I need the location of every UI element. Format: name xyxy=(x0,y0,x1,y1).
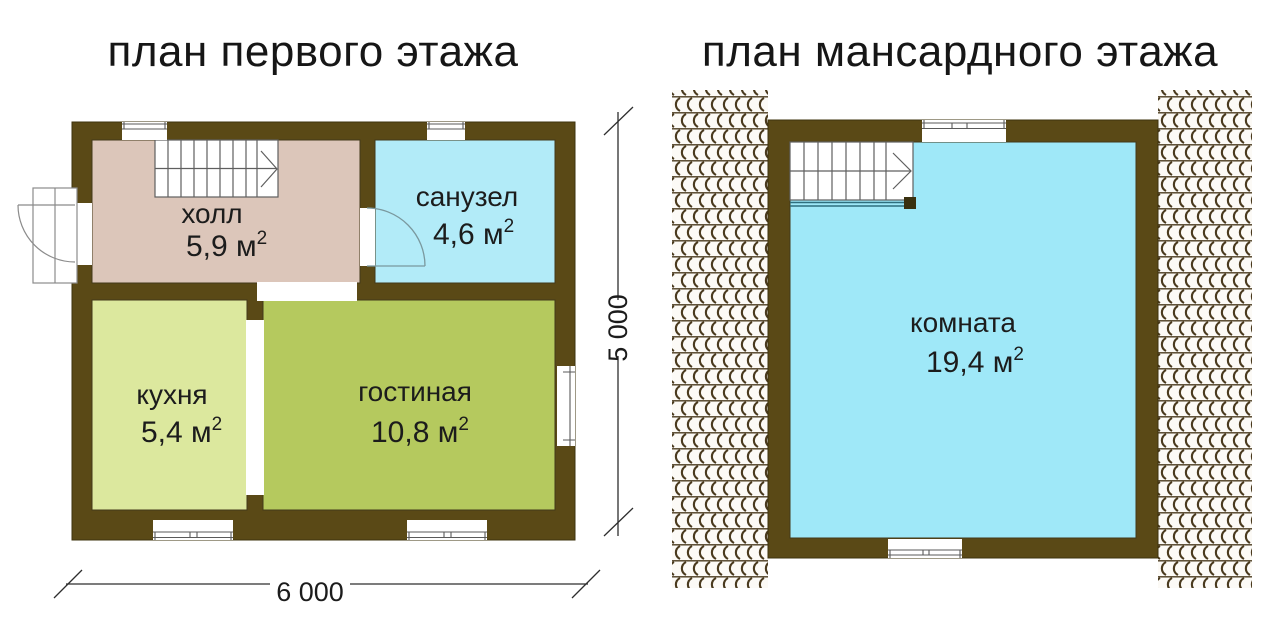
room-kitchen-label: кухня xyxy=(136,379,207,410)
room-hall-area: 5,9 м2 xyxy=(186,228,267,263)
stairs-floor2 xyxy=(790,142,913,200)
roof-hatch-right xyxy=(1158,90,1252,588)
stairs-floor1 xyxy=(155,140,278,197)
window-hall-top xyxy=(122,122,167,140)
room-living-area: 10,8 м2 xyxy=(371,414,469,449)
room-kitchen-area: 5,4 м2 xyxy=(141,414,222,449)
roof-hatch-left xyxy=(672,90,768,588)
floor2-title: план мансардного этажа xyxy=(702,27,1218,76)
window-attic-bottom xyxy=(888,539,962,558)
floor1-plan: холл 5,9 м2 санузел 4,6 м2 кухня 5,4 м2 … xyxy=(18,107,633,607)
room-attic-label: комната xyxy=(910,307,1016,338)
stairs-newel-post xyxy=(904,197,916,209)
dimension-height-label: 5 000 xyxy=(603,294,633,362)
window-kitchen-bottom xyxy=(153,520,233,540)
floor2-plan: комната 19,4 м2 xyxy=(672,90,1252,588)
floor1-title: план первого этажа xyxy=(108,27,519,76)
opening-kitchen-living xyxy=(246,320,264,495)
window-living-right xyxy=(557,366,575,446)
window-attic-top xyxy=(922,120,1006,142)
opening-bathroom-door xyxy=(360,208,375,266)
room-bathroom-label: санузел xyxy=(416,181,519,212)
room-attic-area: 19,4 м2 xyxy=(926,344,1024,379)
entrance-door xyxy=(18,188,77,283)
floorplan-page: план первого этажа план мансардного этаж… xyxy=(0,0,1280,640)
window-living-bottom xyxy=(407,520,487,540)
floorplans-canvas: план первого этажа план мансардного этаж… xyxy=(0,0,1280,640)
opening-hall-living xyxy=(257,282,357,301)
room-attic xyxy=(790,142,1136,538)
room-hall-label: холл xyxy=(181,198,242,229)
room-living-label: гостиная xyxy=(358,376,472,407)
window-bathroom-top xyxy=(427,122,465,140)
dimension-width-label: 6 000 xyxy=(276,577,344,607)
room-bathroom-area: 4,6 м2 xyxy=(433,216,514,251)
